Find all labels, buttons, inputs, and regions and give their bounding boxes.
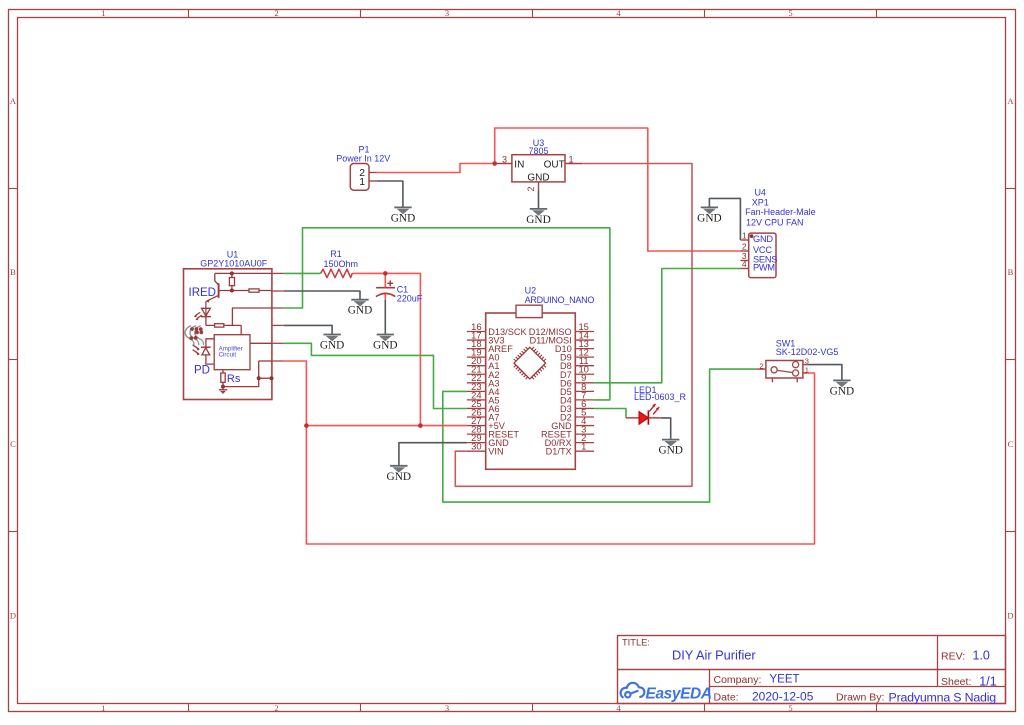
svg-text:3: 3 [445, 703, 449, 713]
svg-text:1: 1 [101, 703, 105, 713]
svg-text:2: 2 [274, 8, 278, 18]
svg-text:2: 2 [742, 242, 747, 252]
svg-text:7805: 7805 [528, 146, 548, 156]
svg-text:VIN: VIN [488, 447, 503, 457]
svg-text:DIY Air Purifier: DIY Air Purifier [672, 648, 756, 663]
svg-text:YEET: YEET [770, 674, 800, 686]
svg-text:30: 30 [471, 441, 481, 452]
svg-text:Rs: Rs [227, 373, 241, 385]
svg-text:Power In 12V: Power In 12V [336, 153, 390, 163]
svg-text:Fan-Header-Male: Fan-Header-Male [745, 207, 816, 217]
svg-text:GND: GND [373, 340, 397, 352]
svg-text:2: 2 [274, 703, 278, 713]
svg-text:GND: GND [527, 172, 549, 183]
svg-text:U2: U2 [525, 285, 537, 295]
svg-text:IRED: IRED [189, 287, 216, 299]
svg-text:1/1: 1/1 [979, 675, 996, 689]
svg-text:XP1: XP1 [752, 198, 769, 208]
svg-text:GND: GND [526, 214, 550, 226]
svg-text:GND: GND [658, 445, 682, 457]
svg-text:D: D [1007, 611, 1013, 621]
svg-text:C: C [1008, 439, 1014, 449]
svg-text:5: 5 [788, 8, 792, 18]
svg-text:GND: GND [391, 212, 415, 224]
svg-text:SK-12D02-VG5: SK-12D02-VG5 [776, 347, 839, 357]
svg-text:PWM: PWM [753, 262, 775, 272]
svg-text:GND: GND [830, 385, 854, 397]
svg-text:Circuit: Circuit [219, 352, 237, 359]
svg-text:Pradyumna S Nadig: Pradyumna S Nadig [889, 690, 997, 704]
svg-text:B: B [1008, 267, 1014, 277]
svg-text:3: 3 [445, 8, 449, 18]
svg-text:ARDUINO_NANO: ARDUINO_NANO [525, 295, 595, 305]
svg-text:A: A [1007, 96, 1014, 106]
svg-text:Drawn By:: Drawn By: [836, 692, 884, 704]
svg-text:4: 4 [742, 259, 747, 269]
svg-text:Sheet:: Sheet: [941, 676, 971, 688]
svg-text:Company:: Company: [714, 674, 762, 686]
svg-text:A: A [10, 96, 17, 106]
svg-text:GND: GND [348, 305, 372, 317]
svg-text:1: 1 [805, 366, 809, 375]
svg-text:PD: PD [194, 364, 210, 376]
svg-text:1: 1 [359, 176, 365, 188]
svg-text:GND: GND [697, 212, 721, 224]
svg-text:GP2Y1010AU0F: GP2Y1010AU0F [200, 258, 268, 268]
svg-text:EasyEDA: EasyEDA [646, 685, 712, 702]
svg-text:OUT: OUT [544, 159, 565, 170]
svg-text:2: 2 [526, 186, 536, 191]
svg-text:GND: GND [753, 234, 773, 244]
svg-text:Date:: Date: [714, 691, 739, 703]
svg-text:LED-0603_R: LED-0603_R [634, 392, 687, 402]
svg-text:2020-12-05: 2020-12-05 [752, 689, 814, 703]
svg-text:2: 2 [759, 361, 763, 370]
svg-text:C: C [10, 439, 16, 449]
svg-text:B: B [10, 267, 16, 277]
svg-text:TITLE:: TITLE: [622, 638, 650, 648]
svg-text:5: 5 [788, 703, 792, 713]
svg-text:GND: GND [387, 471, 411, 483]
svg-text:220uF: 220uF [397, 293, 423, 303]
svg-text:U4: U4 [754, 187, 766, 197]
svg-text:D1/TX: D1/TX [546, 447, 572, 457]
svg-text:D: D [10, 611, 16, 621]
svg-text:GND: GND [320, 340, 344, 352]
svg-text:3: 3 [502, 154, 507, 164]
svg-text:150Ohm: 150Ohm [324, 259, 359, 269]
svg-text:3: 3 [805, 357, 809, 366]
svg-text:R1: R1 [330, 249, 342, 259]
svg-text:1: 1 [101, 8, 105, 18]
svg-text:1.0: 1.0 [973, 649, 990, 663]
svg-text:12V CPU FAN: 12V CPU FAN [746, 218, 804, 228]
svg-text:1: 1 [742, 231, 747, 241]
svg-text:IN: IN [514, 159, 524, 170]
svg-text:REV:: REV: [941, 651, 965, 663]
svg-text:1: 1 [581, 441, 586, 452]
svg-text:1: 1 [569, 154, 574, 164]
